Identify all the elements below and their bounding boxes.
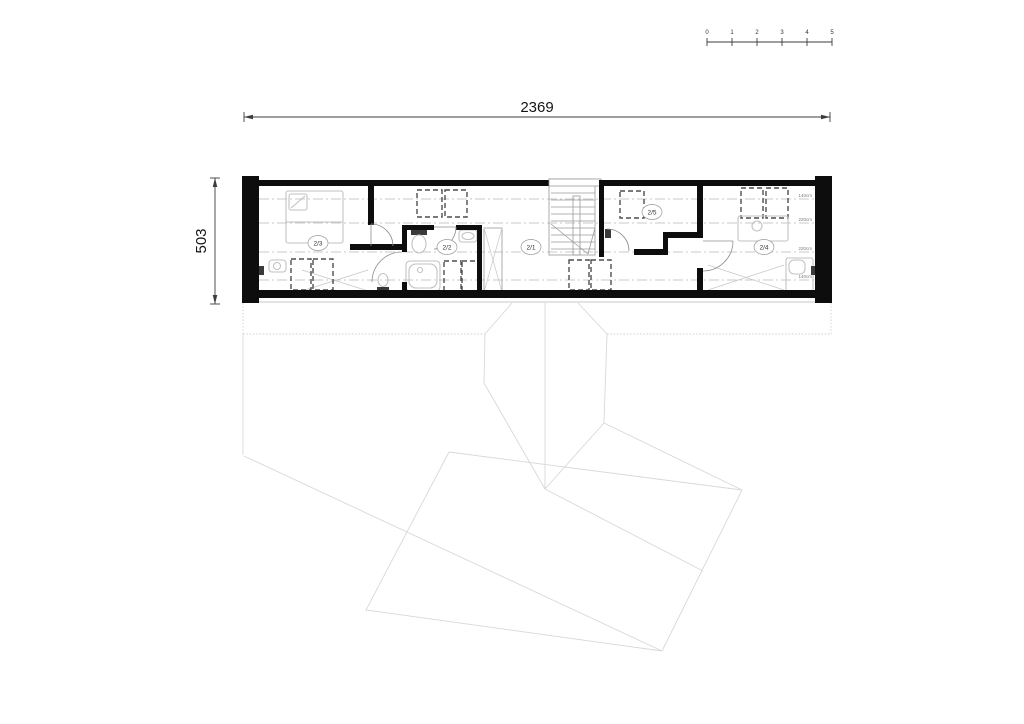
sink-bathroom	[459, 230, 477, 242]
dimension-height-text: 503	[193, 228, 210, 253]
wardrobe-hall-bottom	[569, 260, 611, 290]
floor-plan-svg: 2/3 2/2 2/1 2/5 2/4 140cm 220cm 220cm 14…	[0, 0, 1024, 724]
svg-text:2/1: 2/1	[526, 245, 535, 252]
dimension-top: 2369	[244, 99, 830, 122]
top-wall-right-segment	[601, 180, 815, 186]
side-table-room-2-3	[269, 260, 286, 272]
laundry-cabinets-bathroom	[444, 261, 479, 291]
room-label-2-1: 2/1	[521, 240, 541, 255]
svg-text:3: 3	[780, 30, 784, 36]
svg-text:5: 5	[830, 30, 834, 36]
svg-text:140cm: 140cm	[798, 193, 812, 198]
svg-text:140cm: 140cm	[798, 274, 812, 279]
stairwell-opening	[549, 179, 601, 186]
svg-text:4: 4	[805, 30, 809, 36]
bathtub	[406, 261, 440, 291]
door-room-2-4	[703, 241, 733, 271]
wardrobe-2-5	[620, 191, 644, 218]
stairs	[549, 179, 595, 255]
floor-plan-sheet: 2/3 2/2 2/1 2/5 2/4 140cm 220cm 220cm 14…	[0, 0, 1024, 724]
svg-text:1: 1	[730, 30, 734, 36]
door-room-2-5	[605, 229, 629, 251]
low-height-cross-2-3	[302, 270, 368, 291]
wardrobe-hall-top	[417, 190, 467, 217]
dimension-left: 503	[193, 178, 220, 304]
room-label-2-5: 2/5	[642, 205, 662, 220]
bottom-wall	[259, 290, 815, 298]
door-room-2-3	[371, 224, 393, 246]
svg-text:2/5: 2/5	[647, 210, 656, 217]
svg-text:2/3: 2/3	[313, 241, 322, 248]
room-label-2-2: 2/2	[437, 240, 457, 255]
dimension-width-text: 2369	[520, 99, 553, 116]
toilet-closet	[377, 274, 389, 292]
svg-text:2/2: 2/2	[442, 245, 451, 252]
walls	[242, 176, 832, 303]
ceiling-height-lines	[259, 199, 815, 280]
toilet-bathroom	[411, 230, 427, 253]
closet-hall-x	[484, 228, 502, 292]
low-height-cross-2-4	[708, 265, 784, 290]
desk-2-4	[738, 216, 788, 241]
svg-text:220cm: 220cm	[798, 217, 812, 222]
end-wall-right	[815, 176, 832, 303]
room-label-2-4: 2/4	[754, 240, 774, 255]
radiator-left	[259, 266, 264, 275]
lower-roof-outline	[243, 302, 831, 651]
wardrobe-2-3	[291, 259, 333, 290]
room-label-2-3: 2/3	[308, 236, 328, 251]
end-wall-left	[242, 176, 259, 303]
furniture	[259, 188, 815, 292]
door-closet	[372, 252, 402, 282]
top-wall-left-segment	[259, 180, 549, 186]
svg-text:2: 2	[755, 30, 759, 36]
svg-text:0: 0	[705, 30, 709, 36]
svg-text:220cm: 220cm	[798, 246, 812, 251]
svg-text:2/4: 2/4	[759, 245, 768, 252]
wardrobe-2-4	[741, 188, 788, 218]
scale-bar: 0 1 2 3 4 5	[705, 30, 834, 46]
